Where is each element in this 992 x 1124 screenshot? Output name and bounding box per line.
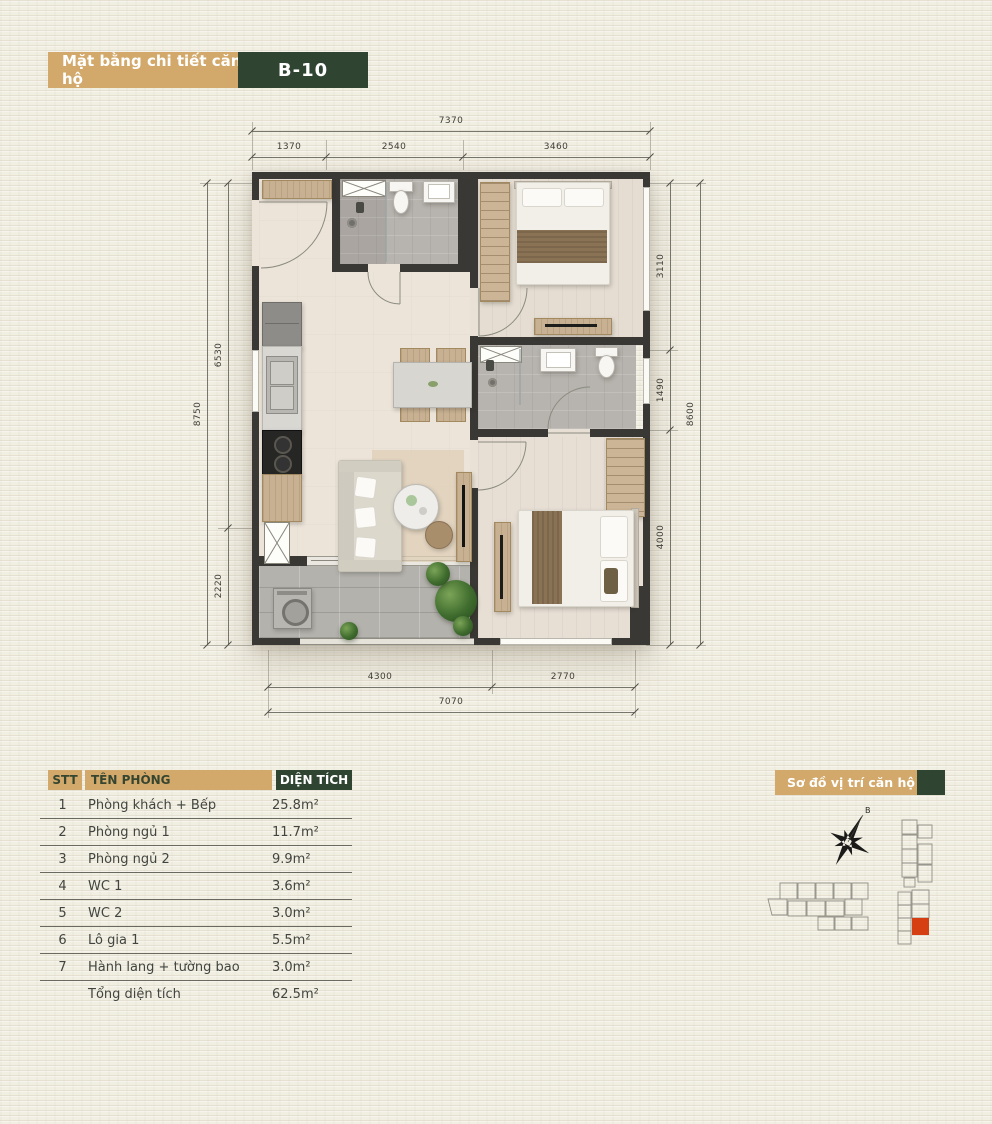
key-plan-tower-lower — [898, 890, 929, 944]
compass-icon — [818, 806, 883, 876]
table-row: 3Phòng ngủ 29.9m² — [40, 846, 352, 873]
key-plan: B — [762, 798, 958, 950]
dim-ext — [646, 350, 678, 351]
compass-north-label: B — [865, 806, 871, 815]
dim-line-left-segments — [228, 183, 229, 645]
unit-highlight — [912, 918, 929, 935]
table-row: 6Lô gia 15.5m² — [40, 927, 352, 954]
dim-label: 6530 — [214, 343, 224, 368]
unit-code-badge: B-10 — [238, 52, 368, 88]
table-row: 7Hành lang + tường bao3.0m² — [40, 954, 352, 981]
dim-line-left-overall — [207, 183, 208, 645]
dim-label: 7070 — [439, 697, 464, 707]
location-panel-title: Sơ đồ vị trí căn hộ — [775, 770, 929, 795]
dim-label: 8750 — [193, 402, 203, 427]
location-panel-accent — [917, 770, 945, 795]
table-row: 5WC 23.0m² — [40, 900, 352, 927]
table-row: 2Phòng ngủ 111.7m² — [40, 819, 352, 846]
page-title: Mặt bằng chi tiết căn hộ — [48, 52, 252, 88]
dim-line-right-overall — [700, 183, 701, 645]
dim-label: 8600 — [686, 402, 696, 427]
dim-label: 7370 — [439, 116, 464, 126]
dim-line-bottom-overall — [268, 712, 635, 713]
dim-line-right-segments — [670, 183, 671, 645]
key-plan-tower-upper — [902, 820, 932, 887]
dim-label: 3110 — [656, 254, 666, 279]
door-swings — [252, 172, 650, 645]
table-header-row: STT TÊN PHÒNG DIỆN TÍCH — [40, 770, 352, 790]
dim-label: 2770 — [551, 672, 576, 682]
table-total-row: Tổng diện tích62.5m² — [40, 981, 352, 1007]
brochure-page: Mặt bằng chi tiết căn hộ B-10 7370 1370 … — [0, 0, 992, 1124]
floor-plan — [252, 172, 650, 645]
dim-label: 4000 — [656, 525, 666, 550]
table-row: 1Phòng khách + Bếp25.8m² — [40, 792, 352, 819]
dim-label: 1490 — [656, 378, 666, 403]
dim-label: 1370 — [277, 142, 302, 152]
dim-label: 2540 — [382, 142, 407, 152]
dim-line-bottom-segments — [268, 687, 635, 688]
dim-ext — [646, 430, 678, 431]
dim-line-top-overall — [252, 131, 650, 132]
dim-line-top-segments — [252, 157, 650, 158]
table-row: 4WC 13.6m² — [40, 873, 352, 900]
col-header-name: TÊN PHÒNG — [85, 770, 272, 790]
dim-label: 4300 — [368, 672, 393, 682]
dim-label: 3460 — [544, 142, 569, 152]
col-header-stt: STT — [48, 770, 82, 790]
key-plan-wing — [768, 883, 868, 930]
col-header-area: DIỆN TÍCH — [276, 770, 352, 790]
dim-ext — [218, 528, 254, 529]
area-table: STT TÊN PHÒNG DIỆN TÍCH 1Phòng khách + B… — [40, 770, 352, 1007]
dim-label: 2220 — [214, 574, 224, 599]
